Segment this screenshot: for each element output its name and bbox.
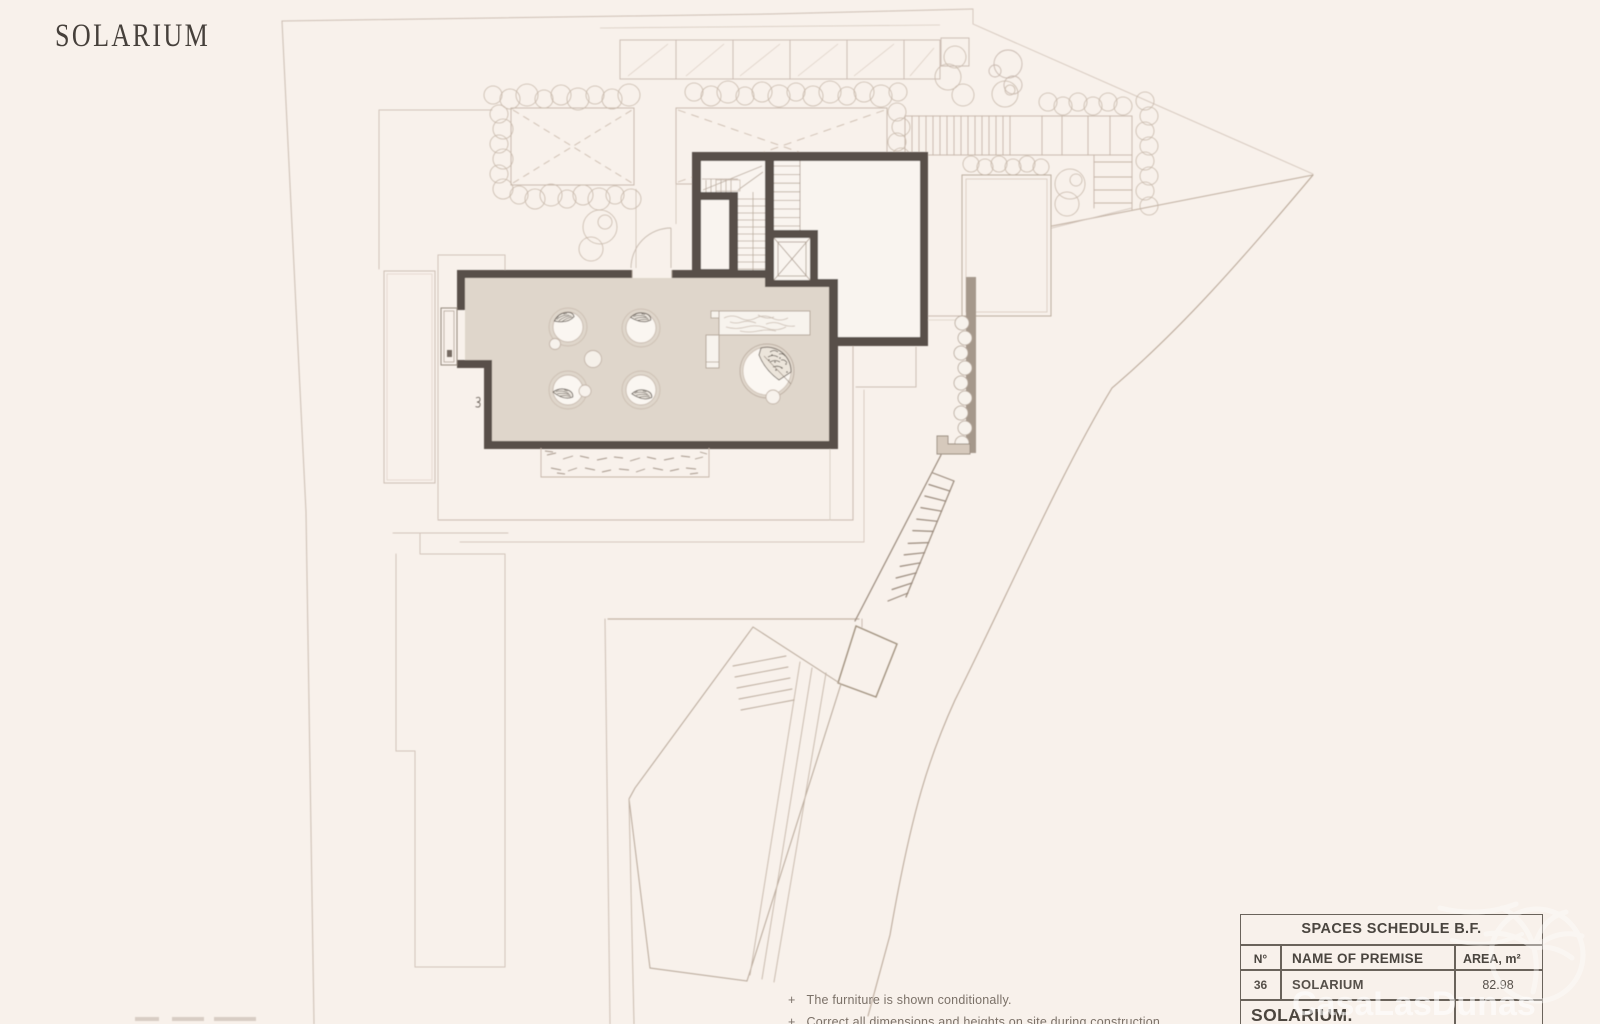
svg-text:CasaLasDunas: CasaLasDunas bbox=[1292, 985, 1536, 1023]
